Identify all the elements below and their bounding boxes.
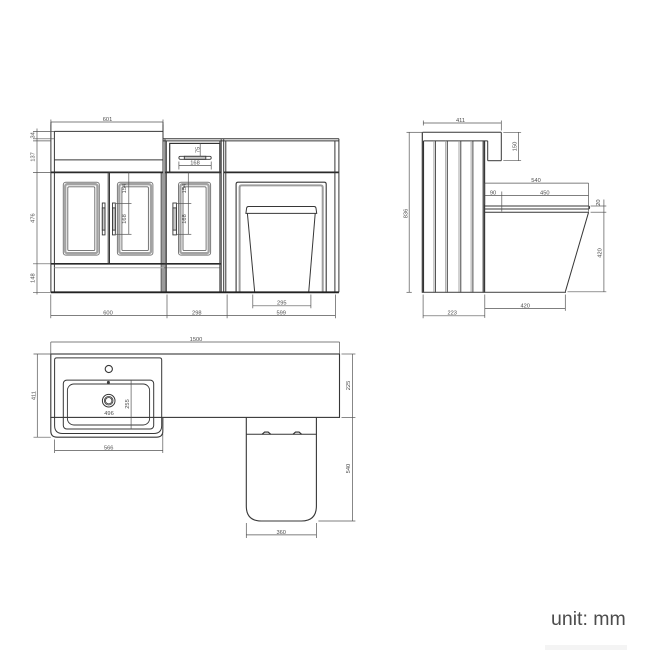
svg-text:566: 566 bbox=[104, 445, 114, 451]
svg-text:148: 148 bbox=[30, 273, 36, 283]
svg-text:90: 90 bbox=[490, 190, 496, 196]
svg-text:420: 420 bbox=[597, 248, 603, 258]
svg-text:599: 599 bbox=[276, 311, 286, 317]
svg-text:150: 150 bbox=[512, 142, 518, 152]
svg-text:476: 476 bbox=[30, 213, 36, 223]
svg-text:unit: mm: unit: mm bbox=[551, 608, 626, 630]
svg-text:836: 836 bbox=[403, 209, 409, 219]
svg-text:450: 450 bbox=[540, 190, 550, 196]
svg-text:154: 154 bbox=[182, 184, 188, 194]
svg-text:34: 34 bbox=[30, 132, 36, 138]
svg-text:600: 600 bbox=[103, 311, 113, 317]
svg-text:168: 168 bbox=[122, 214, 128, 224]
svg-text:411: 411 bbox=[456, 118, 465, 124]
svg-text:496: 496 bbox=[104, 411, 114, 417]
svg-text:360: 360 bbox=[276, 530, 286, 536]
svg-text:20: 20 bbox=[596, 199, 602, 205]
svg-text:75: 75 bbox=[195, 147, 201, 153]
svg-text:223: 223 bbox=[447, 311, 457, 317]
svg-text:411: 411 bbox=[31, 391, 37, 400]
svg-text:295: 295 bbox=[277, 301, 287, 307]
svg-text:540: 540 bbox=[346, 464, 352, 474]
svg-text:298: 298 bbox=[192, 311, 202, 317]
svg-text:137: 137 bbox=[30, 152, 36, 162]
svg-text:154: 154 bbox=[122, 184, 128, 194]
svg-text:255: 255 bbox=[125, 399, 131, 409]
svg-text:225: 225 bbox=[346, 381, 352, 391]
svg-text:540: 540 bbox=[531, 178, 541, 184]
svg-text:420: 420 bbox=[520, 304, 530, 310]
svg-text:168: 168 bbox=[190, 161, 200, 167]
svg-text:601: 601 bbox=[103, 117, 113, 123]
svg-text:168: 168 bbox=[182, 214, 188, 224]
svg-text:1500: 1500 bbox=[190, 337, 203, 343]
